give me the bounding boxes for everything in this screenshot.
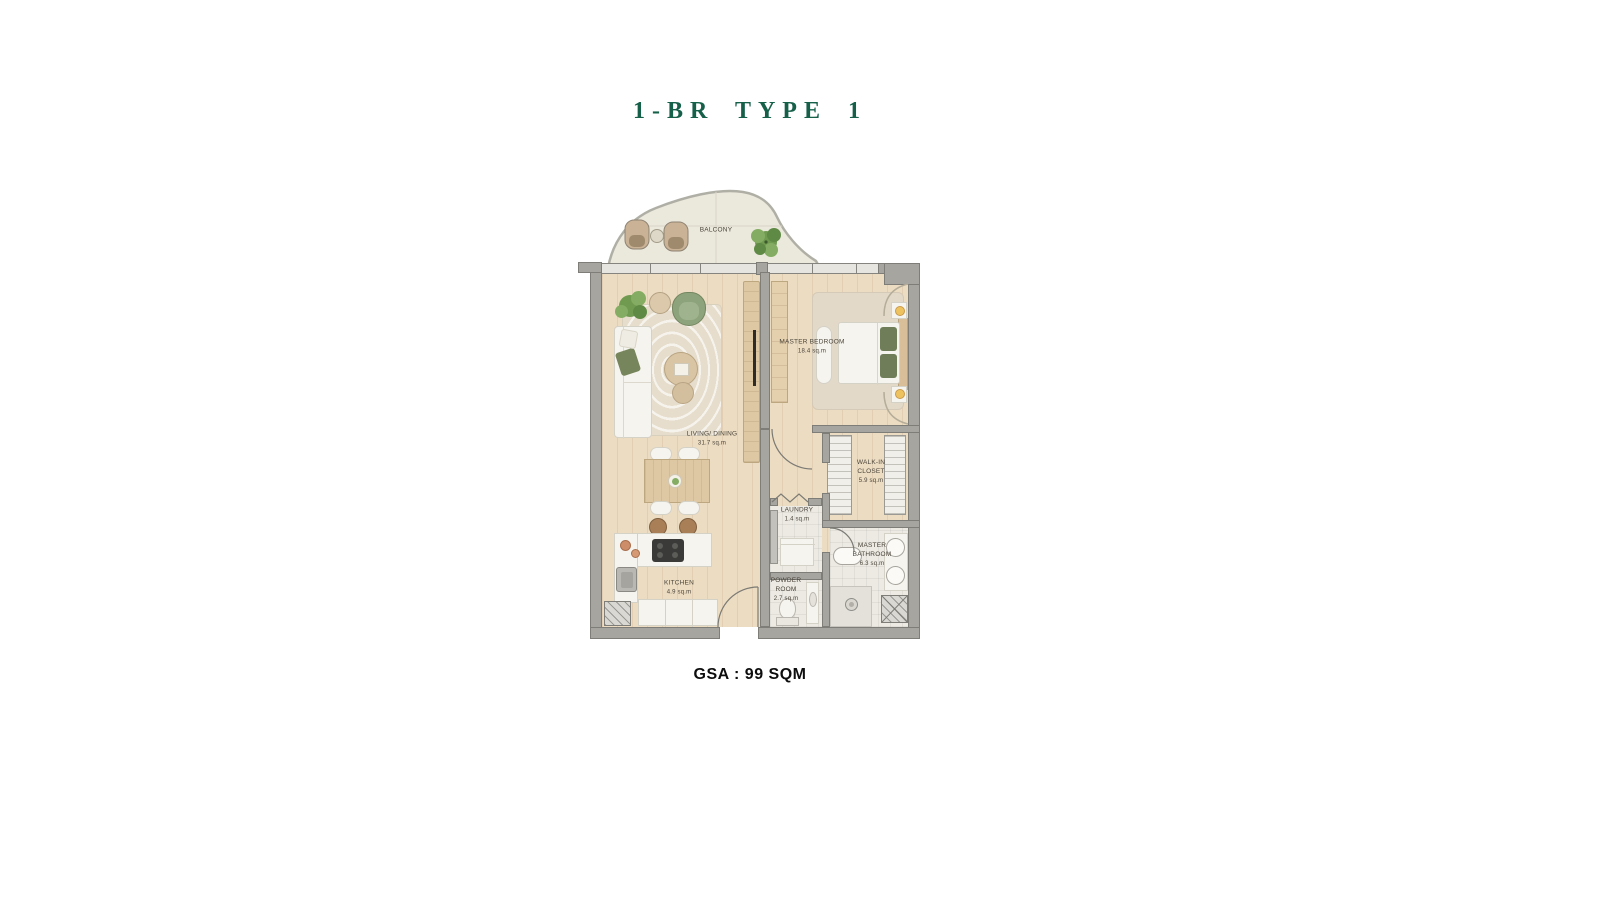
coffee-table [664, 352, 698, 386]
room-label-walk-in-closet: WALK-IN CLOSET 5.9 sq.m [848, 459, 894, 485]
wall-top-left-stub [578, 262, 602, 273]
balcony-chair-icon [664, 222, 688, 251]
floorplan-page: 1-BR TYPE 1 GSA : 99 SQM BALCONY [0, 0, 1600, 900]
service-shaft [881, 595, 908, 623]
wall-laundry-top-stub [770, 498, 778, 506]
page-title: 1-BR TYPE 1 [0, 98, 1500, 125]
shower-drain [845, 598, 858, 611]
tv-console [743, 281, 760, 463]
side-table [649, 292, 671, 314]
wall-left [590, 263, 602, 639]
room-label-laundry: LAUNDRY 1.4 sq.m [781, 507, 813, 524]
powder-sink [809, 592, 817, 607]
balcony-tree-icon [751, 228, 781, 257]
toilet-tank [776, 617, 799, 626]
wall-corner-block [884, 263, 920, 285]
gross-area-label: GSA : 99 SQM [0, 666, 1500, 684]
wall-closet-left-upper [822, 433, 830, 463]
bed-pillow [880, 354, 897, 378]
wall-bedroom-bottom [812, 425, 920, 433]
room-label-master-bathroom: MASTER BATHROOM 6.3 sq.m [846, 542, 898, 568]
room-label-living-dining: LIVING/ DINING 31.7 sq.m [687, 431, 737, 448]
serving-dish [620, 540, 631, 551]
kitchen-sink [616, 567, 637, 592]
coffee-table-small [672, 382, 694, 404]
bed-pillow [880, 327, 897, 351]
potted-plant-icon [615, 289, 651, 325]
window-band [602, 263, 878, 274]
laundry-shelves [770, 510, 778, 564]
wall-bottom-left [590, 627, 720, 639]
wall-right [908, 263, 920, 639]
room-label-kitchen: KITCHEN 4.9 sq.m [664, 580, 694, 597]
dining-chair [678, 501, 700, 515]
table-centerpiece [668, 474, 682, 488]
serving-dish [631, 549, 640, 558]
armchair [672, 292, 706, 326]
lamp-icon [895, 389, 905, 399]
cooktop [652, 539, 684, 562]
sofa-pillow [619, 329, 639, 350]
washing-machine [780, 538, 814, 566]
wall-laundry-top-stub [808, 498, 822, 506]
bathroom-sink [886, 566, 905, 585]
balcony-table-icon [651, 230, 664, 243]
balcony-label: BALCONY [700, 227, 732, 236]
balcony-outline [580, 180, 842, 268]
dining-chair [650, 501, 672, 515]
wall-bottom-right [758, 627, 920, 639]
room-label-powder-room: POWDER ROOM 2.7 sq.m [766, 577, 806, 603]
tv-icon [753, 330, 756, 386]
room-label-master-bedroom: MASTER BEDROOM 18.4 sq.m [779, 339, 844, 356]
wall-bathroom-left [822, 552, 830, 627]
lamp-icon [895, 306, 905, 316]
service-shaft [604, 601, 631, 626]
wall-living-bedroom [760, 272, 770, 429]
wall-bathroom-top [822, 520, 920, 528]
balcony-chair-icon [625, 220, 649, 249]
kitchen-base-cabinets [638, 599, 718, 626]
